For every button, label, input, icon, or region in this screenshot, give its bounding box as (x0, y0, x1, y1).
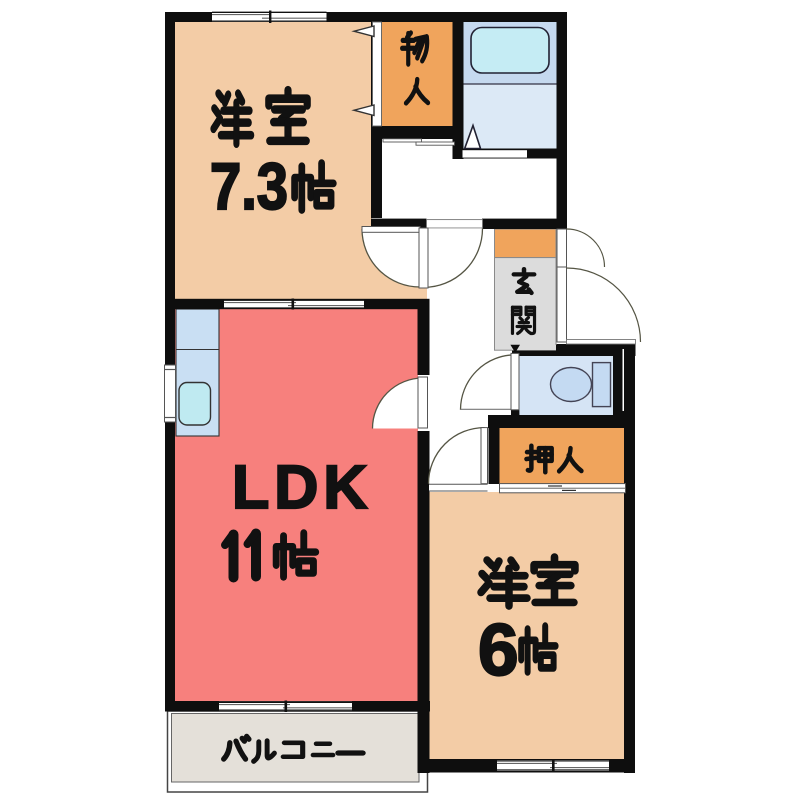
svg-text:LDK: LDK (232, 453, 372, 521)
svg-text:7.3: 7.3 (210, 149, 288, 223)
svg-text:6: 6 (478, 610, 519, 691)
